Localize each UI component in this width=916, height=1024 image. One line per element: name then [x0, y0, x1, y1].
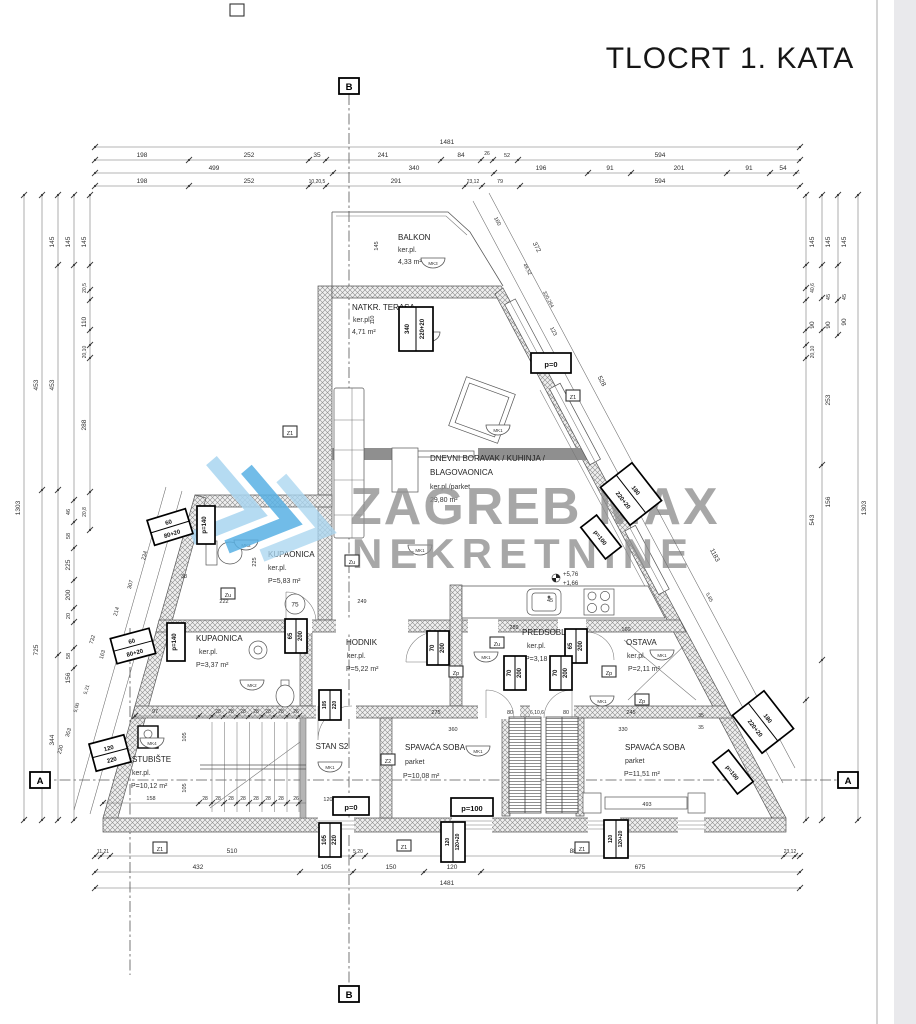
axis-marker-a-left: A	[30, 772, 50, 788]
svg-text:340: 340	[409, 165, 420, 172]
svg-text:Zp: Zp	[606, 671, 612, 677]
dim-box-70-a: 70 200	[427, 631, 449, 665]
svg-text:156: 156	[825, 496, 832, 507]
svg-text:38: 38	[181, 574, 187, 580]
svg-text:150: 150	[386, 864, 397, 871]
svg-text:70: 70	[553, 669, 559, 676]
svg-text:105: 105	[182, 783, 188, 792]
svg-text:200: 200	[440, 642, 446, 653]
svg-text:MK2: MK2	[247, 683, 257, 688]
svg-text:28: 28	[265, 709, 271, 715]
svg-text:P=3,37 m²: P=3,37 m²	[196, 662, 229, 669]
svg-text:20,10: 20,10	[810, 346, 816, 359]
svg-text:23,12: 23,12	[467, 179, 480, 185]
svg-text:200: 200	[517, 667, 523, 678]
svg-text:Zu: Zu	[349, 560, 355, 566]
svg-text:145: 145	[825, 236, 832, 247]
page-margin-strip	[894, 0, 916, 1024]
svg-text:28: 28	[202, 796, 208, 802]
svg-text:70: 70	[430, 644, 436, 651]
svg-text:493: 493	[642, 802, 651, 808]
svg-text:225: 225	[65, 559, 72, 570]
svg-text:249: 249	[357, 599, 366, 605]
svg-text:p=140: p=140	[202, 516, 208, 534]
svg-text:220+20: 220+20	[420, 318, 426, 339]
svg-text:120: 120	[608, 835, 614, 844]
svg-text:70: 70	[507, 669, 513, 676]
svg-text:90: 90	[841, 318, 848, 326]
dim-box-70-c: 70 200	[550, 656, 572, 690]
svg-text:90: 90	[809, 321, 816, 329]
svg-text:P=10,12 m²: P=10,12 m²	[131, 783, 168, 790]
svg-text:DNEVNI BORAVAK / KUHINJA /: DNEVNI BORAVAK / KUHINJA /	[430, 454, 546, 463]
svg-text:198: 198	[137, 178, 148, 185]
wall-mid	[156, 620, 686, 632]
axis-marker-b-top: B	[339, 78, 359, 94]
dim-box-105-b: 105 220	[319, 823, 341, 857]
svg-text:BALKON: BALKON	[398, 233, 431, 242]
svg-text:A: A	[37, 776, 44, 787]
floorplan-canvas: TLOCRT 1. KATA	[0, 0, 916, 1024]
svg-text:MK1: MK1	[657, 653, 667, 658]
svg-text:Z1: Z1	[157, 847, 163, 853]
svg-text:245: 245	[626, 710, 635, 716]
svg-text:80: 80	[563, 710, 569, 716]
svg-text:58: 58	[66, 653, 72, 659]
svg-text:225: 225	[252, 557, 258, 566]
svg-text:SPAVAĆA SOBA: SPAVAĆA SOBA	[625, 743, 686, 752]
svg-text:Zu: Zu	[494, 642, 500, 648]
svg-text:Z1: Z1	[570, 395, 576, 401]
svg-text:252: 252	[244, 152, 255, 159]
svg-text:KUPAONICA: KUPAONICA	[196, 634, 243, 643]
svg-text:1481: 1481	[440, 139, 455, 146]
svg-text:MK1: MK1	[493, 428, 503, 433]
svg-text:241: 241	[378, 152, 389, 159]
svg-text:360: 360	[448, 727, 457, 733]
svg-text:54: 54	[779, 165, 787, 172]
svg-text:+1,66: +1,66	[563, 581, 579, 587]
svg-text:65: 65	[568, 642, 574, 649]
svg-text:P=10,08 m²: P=10,08 m²	[403, 773, 440, 780]
wall-left-upper	[318, 286, 332, 620]
svg-text:105: 105	[322, 834, 328, 845]
svg-text:ker.pl.: ker.pl.	[347, 653, 366, 660]
wall-landing-bed1	[380, 718, 392, 818]
svg-text:ker.pl.: ker.pl.	[627, 653, 646, 660]
floorplan-page: TLOCRT 1. KATA	[0, 0, 916, 1024]
svg-text:MK1: MK1	[325, 765, 335, 770]
svg-text:105: 105	[322, 701, 328, 710]
svg-text:330: 330	[618, 727, 627, 733]
svg-text:594: 594	[655, 178, 666, 185]
svg-text:35: 35	[698, 725, 704, 731]
dim-box-70-b: 70 200	[504, 656, 526, 690]
svg-text:340: 340	[405, 323, 411, 334]
svg-text:28: 28	[265, 796, 271, 802]
svg-text:725: 725	[33, 644, 40, 655]
svg-text:28: 28	[215, 709, 221, 715]
svg-text:196: 196	[536, 165, 547, 172]
axis-marker-b-bottom: B	[339, 986, 359, 1002]
svg-text:Zu: Zu	[225, 593, 231, 599]
svg-text:45: 45	[842, 294, 848, 300]
svg-text:ker.pl.: ker.pl.	[132, 770, 151, 777]
svg-text:P=5,83 m²: P=5,83 m²	[268, 578, 301, 585]
svg-text:91: 91	[745, 165, 753, 172]
svg-text:B: B	[346, 82, 353, 93]
svg-text:145: 145	[841, 236, 848, 247]
svg-text:35: 35	[313, 152, 321, 159]
svg-text:28: 28	[278, 796, 284, 802]
svg-text:ker.pl.: ker.pl.	[268, 565, 287, 572]
svg-text:220: 220	[332, 834, 338, 845]
svg-text:28: 28	[253, 796, 259, 802]
svg-text:4,33 m²: 4,33 m²	[398, 259, 422, 266]
svg-text:275: 275	[431, 710, 440, 716]
svg-text:OSTAVA: OSTAVA	[626, 638, 657, 647]
svg-text:STUBIŠTE: STUBIŠTE	[132, 755, 171, 764]
svg-text:P=2,11 m²: P=2,11 m²	[628, 666, 661, 673]
watermark-line1: ZAGREB MAX	[350, 478, 720, 536]
svg-text:26: 26	[293, 709, 299, 715]
svg-text:MK3: MK3	[428, 261, 438, 266]
svg-text:675: 675	[635, 864, 646, 871]
svg-text:45: 45	[826, 294, 832, 300]
svg-text:ker.pl.: ker.pl.	[398, 247, 417, 254]
svg-text:145: 145	[809, 236, 816, 247]
unit-label: STAN S2	[316, 742, 349, 751]
svg-text:110: 110	[370, 316, 376, 325]
svg-text:p=0: p=0	[544, 360, 557, 369]
sink-diameter: 45	[547, 598, 553, 604]
svg-text:MK4: MK4	[147, 741, 157, 746]
svg-text:156: 156	[65, 672, 72, 683]
dim-box-p0-terasa: p=0	[531, 353, 571, 373]
svg-text:291: 291	[391, 178, 402, 185]
svg-text:A: A	[845, 776, 852, 787]
svg-text:594: 594	[655, 152, 666, 159]
watermark-line2: NEKRETNINE	[352, 530, 695, 577]
svg-text:120+20: 120+20	[455, 833, 461, 850]
svg-text:parket: parket	[625, 758, 645, 765]
svg-text:52: 52	[504, 153, 510, 159]
svg-text:252: 252	[244, 178, 255, 185]
dim-box-340: 340 220+20	[399, 307, 433, 351]
dim-box-12020-b: 120 120+20	[604, 820, 628, 858]
svg-text:432: 432	[193, 864, 204, 871]
svg-text:84: 84	[457, 152, 465, 159]
svg-text:20,5: 20,5	[82, 283, 88, 293]
svg-text:80: 80	[507, 710, 513, 716]
dim-box-65-a: 65 200	[285, 619, 307, 653]
svg-text:91: 91	[606, 165, 614, 172]
svg-text:58: 58	[66, 533, 72, 539]
dim-box-p0-stan: p=0	[333, 797, 369, 815]
svg-text:200: 200	[298, 630, 304, 641]
svg-text:145: 145	[49, 236, 56, 247]
svg-text:ker.pl.: ker.pl.	[199, 649, 218, 656]
svg-text:MK1: MK1	[473, 749, 483, 754]
svg-text:ker.pl.: ker.pl.	[527, 643, 546, 650]
svg-text:BLAGOVAONICA: BLAGOVAONICA	[430, 468, 494, 477]
wall-hall-foyer	[450, 585, 462, 706]
svg-text:110: 110	[81, 316, 88, 327]
svg-text:499: 499	[209, 165, 220, 172]
svg-text:288: 288	[81, 419, 88, 430]
svg-text:Z1: Z1	[287, 431, 293, 437]
svg-text:parket: parket	[405, 759, 425, 766]
svg-text:Z2: Z2	[385, 759, 391, 765]
svg-text:MK1: MK1	[481, 655, 491, 660]
kitchen-sink	[527, 589, 561, 615]
svg-text:145: 145	[374, 241, 380, 250]
svg-text:120+20: 120+20	[618, 830, 624, 847]
svg-text:B: B	[346, 990, 353, 1001]
svg-text:120: 120	[445, 838, 451, 847]
svg-text:158: 158	[146, 796, 155, 802]
svg-text:p=140: p=140	[172, 633, 178, 651]
svg-text:97: 97	[152, 709, 158, 715]
dim-box-p140-a: p=140	[197, 506, 215, 544]
svg-text:160: 160	[621, 627, 630, 633]
dim-box-p140-b: p=140	[167, 623, 185, 661]
svg-text:Z1: Z1	[579, 847, 585, 853]
svg-text:ker.pl.: ker.pl.	[353, 317, 372, 324]
svg-text:120: 120	[447, 864, 458, 871]
svg-text:46: 46	[66, 509, 72, 515]
svg-text:28: 28	[228, 796, 234, 802]
wall-terrace-top	[332, 286, 508, 298]
svg-text:Zp: Zp	[453, 671, 459, 677]
stove	[584, 589, 614, 615]
svg-text:6,10,6: 6,10,6	[530, 710, 544, 716]
svg-text:289: 289	[509, 625, 518, 631]
svg-text:Zp: Zp	[639, 699, 645, 705]
page-title: TLOCRT 1. KATA	[606, 42, 855, 75]
shower-diameter: 75	[291, 602, 299, 609]
svg-text:26: 26	[293, 796, 299, 802]
svg-text:200: 200	[563, 667, 569, 678]
svg-text:28: 28	[253, 709, 259, 715]
cut-marker	[230, 4, 244, 16]
svg-text:543: 543	[809, 514, 816, 525]
svg-text:145: 145	[65, 236, 72, 247]
svg-text:65: 65	[288, 632, 294, 639]
svg-text:90: 90	[825, 321, 832, 329]
svg-text:1303: 1303	[861, 500, 868, 515]
svg-text:SPAVAĆA SOBA: SPAVAĆA SOBA	[405, 743, 466, 752]
svg-text:26: 26	[484, 151, 490, 157]
svg-text:28: 28	[240, 796, 246, 802]
svg-text:510: 510	[227, 848, 238, 855]
svg-text:28: 28	[278, 709, 284, 715]
svg-text:105: 105	[182, 732, 188, 741]
svg-text:1303: 1303	[15, 500, 22, 515]
svg-text:20: 20	[66, 613, 72, 619]
svg-text:201: 201	[674, 165, 685, 172]
svg-text:200: 200	[65, 589, 72, 600]
svg-text:453: 453	[49, 379, 56, 390]
dim-box-12020-a: 120 120+20	[441, 822, 465, 862]
svg-text:HODNIK: HODNIK	[346, 638, 378, 647]
svg-text:145: 145	[81, 236, 88, 247]
axis-marker-a-right: A	[838, 772, 858, 788]
svg-text:p=100: p=100	[461, 804, 482, 813]
svg-text:200: 200	[578, 640, 584, 651]
svg-text:344: 344	[49, 734, 56, 745]
svg-text:p=0: p=0	[344, 803, 357, 812]
svg-text:253: 253	[825, 394, 832, 405]
svg-text:MK1: MK1	[597, 699, 607, 704]
svg-text:35: 35	[698, 713, 704, 719]
dim-box-p100-bed1: p=100	[451, 798, 493, 816]
svg-text:40,6: 40,6	[810, 283, 816, 293]
svg-text:28: 28	[240, 709, 246, 715]
svg-text:120: 120	[323, 797, 332, 803]
dim-box-105-a: 105 220	[319, 690, 341, 720]
svg-text:79: 79	[497, 179, 503, 185]
washing-machine	[249, 641, 267, 659]
svg-text:220: 220	[332, 701, 338, 710]
svg-text:28: 28	[215, 796, 221, 802]
svg-text:105: 105	[321, 864, 332, 871]
svg-text:28: 28	[228, 709, 234, 715]
kitchen-counter	[462, 586, 665, 618]
svg-text:P=11,51 m²: P=11,51 m²	[624, 771, 661, 778]
svg-text:Z1: Z1	[401, 845, 407, 851]
svg-text:453: 453	[33, 379, 40, 390]
svg-text:4,71 m²: 4,71 m²	[352, 329, 376, 336]
svg-text:1481: 1481	[440, 880, 455, 887]
svg-text:222: 222	[219, 599, 228, 605]
svg-text:20,8: 20,8	[82, 507, 88, 517]
svg-text:P=5,22 m²: P=5,22 m²	[346, 666, 379, 673]
svg-text:198: 198	[137, 152, 148, 159]
